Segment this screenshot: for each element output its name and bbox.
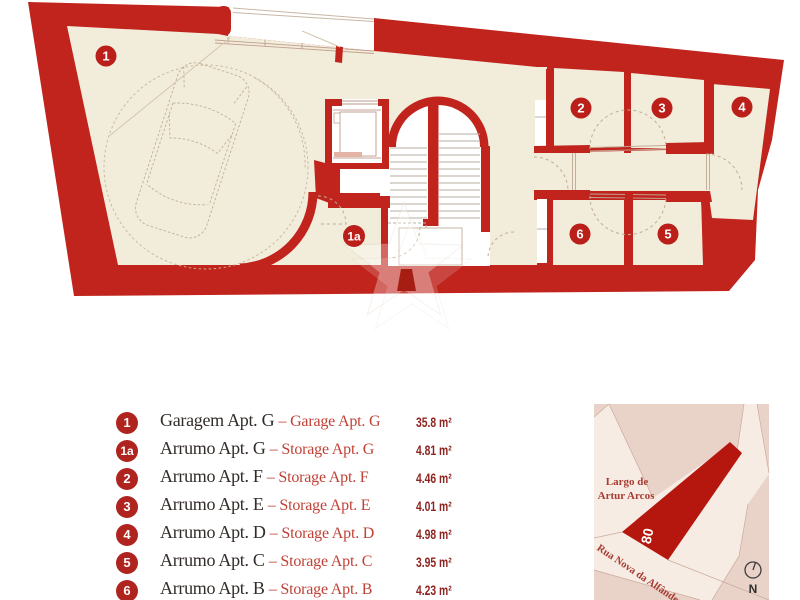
svg-text:3: 3 <box>658 101 665 116</box>
svg-text:Artur Arcos: Artur Arcos <box>598 490 655 502</box>
svg-text:Largo de: Largo de <box>606 476 649 488</box>
svg-text:6: 6 <box>576 227 583 242</box>
svg-text:1a: 1a <box>347 230 361 244</box>
svg-text:5: 5 <box>664 227 671 242</box>
svg-text:2: 2 <box>577 101 584 116</box>
svg-text:N: N <box>749 582 758 596</box>
svg-text:4: 4 <box>738 100 746 115</box>
svg-text:1: 1 <box>102 49 109 64</box>
